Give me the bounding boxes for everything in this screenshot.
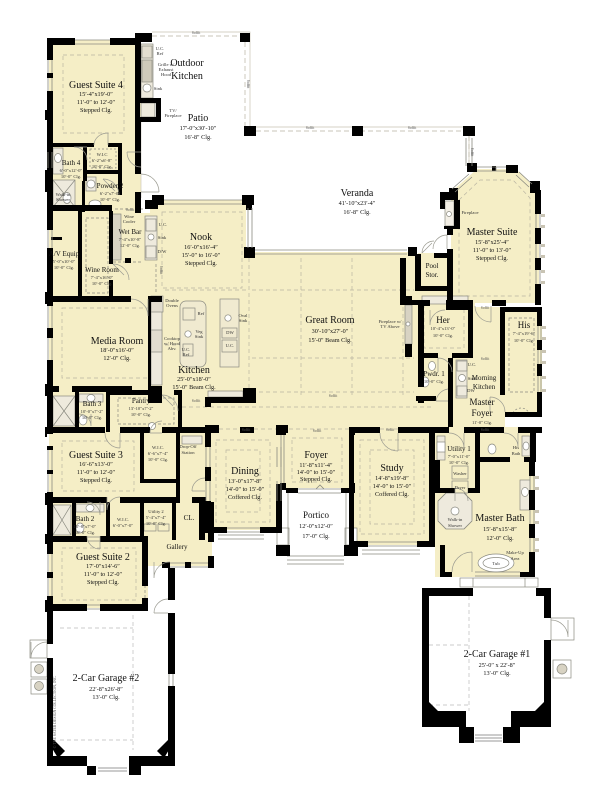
svg-text:25′-0″x18′-0″: 25′-0″x18′-0″ [177, 376, 211, 383]
svg-text:Drop-Off: Drop-Off [179, 444, 197, 449]
svg-text:11′-0″ to 13′-0″: 11′-0″ to 13′-0″ [473, 247, 512, 254]
svg-text:Hood: Hood [161, 72, 172, 77]
svg-text:15′-0″ Beam Clg.: 15′-0″ Beam Clg. [172, 384, 216, 391]
svg-text:7′-0″x11′-0″: 7′-0″x11′-0″ [448, 454, 471, 459]
svg-text:11′-0″ to 12′-0″: 11′-0″ to 12′-0″ [84, 571, 123, 578]
svg-text:Gallery: Gallery [167, 543, 188, 551]
svg-text:13′-0″ Clg.: 13′-0″ Clg. [92, 694, 120, 701]
svg-text:Soffit: Soffit [386, 428, 396, 432]
svg-text:Soffit: Soffit [126, 208, 136, 212]
svg-text:11′-0″ to 12′-0″: 11′-0″ to 12′-0″ [77, 469, 116, 476]
svg-text:10′-0″ Clg.: 10′-0″ Clg. [82, 415, 102, 420]
svg-text:Area: Area [511, 556, 520, 561]
svg-text:12′-0″ Clg.: 12′-0″ Clg. [103, 355, 131, 362]
svg-text:Guest Suite 3: Guest Suite 3 [69, 450, 123, 461]
svg-text:17′-0″x30′-10″: 17′-0″x30′-10″ [180, 125, 217, 132]
svg-text:Cooler: Cooler [123, 219, 136, 224]
svg-text:Soffit: Soffit [313, 429, 323, 433]
svg-text:7′-4″x19′-6″: 7′-4″x19′-6″ [513, 331, 536, 336]
svg-text:Stepped Clg.: Stepped Clg. [476, 255, 508, 262]
svg-text:Sink: Sink [468, 376, 477, 381]
svg-text:25′-0″ x 22′-8″: 25′-0″ x 22′-8″ [479, 662, 516, 669]
svg-text:Nook: Nook [190, 232, 212, 243]
svg-text:Dining: Dining [231, 466, 259, 477]
svg-text:10′-8″x7′-0″: 10′-8″x7′-0″ [74, 524, 97, 529]
svg-text:Bath 3: Bath 3 [83, 400, 102, 408]
svg-text:12′-0″ Clg.: 12′-0″ Clg. [486, 535, 514, 542]
svg-text:His: His [518, 320, 531, 330]
svg-text:14′-0″ to 15′-0″: 14′-0″ to 15′-0″ [226, 486, 265, 493]
svg-text:10′-0″ Clg.: 10′-0″ Clg. [54, 265, 74, 270]
svg-text:14′-8″x19′-8″: 14′-8″x19′-8″ [375, 475, 409, 482]
svg-text:10′-4″x13′-0″: 10′-4″x13′-0″ [431, 326, 456, 331]
svg-text:10′-0″ Clg.: 10′-0″ Clg. [424, 379, 444, 384]
svg-text:Stepped Clg.: Stepped Clg. [87, 579, 119, 586]
svg-text:13′-10″x7′-2″: 13′-10″x7′-2″ [129, 406, 154, 411]
svg-text:Soffit: Soffit [408, 126, 418, 130]
svg-text:Pantry: Pantry [132, 397, 151, 405]
svg-text:5′-4″x7′-4″: 5′-4″x7′-4″ [146, 515, 166, 520]
svg-text:Sink: Sink [154, 86, 163, 91]
svg-text:6′-2″x6′-8″: 6′-2″x6′-8″ [92, 158, 112, 163]
svg-text:10′-0″ Clg.: 10′-0″ Clg. [131, 412, 151, 417]
svg-text:Sink: Sink [239, 318, 248, 323]
svg-text:10′-0″ Clg.: 10′-0″ Clg. [449, 460, 469, 465]
svg-text:W.I.C.: W.I.C. [152, 445, 164, 450]
svg-text:Bath 2: Bath 2 [76, 515, 95, 523]
svg-text:His: His [513, 445, 520, 450]
svg-text:Soffit: Soffit [329, 394, 339, 398]
svg-text:Patio: Patio [188, 113, 209, 124]
svg-text:Sink: Sink [158, 235, 167, 240]
svg-text:10′-0″ Clg.: 10′-0″ Clg. [100, 197, 120, 202]
svg-text:10′-0″x7′-2″: 10′-0″x7′-2″ [81, 409, 104, 414]
svg-text:W.I.C: W.I.C [97, 152, 108, 157]
svg-text:10′-0″ Clg.: 10′-0″ Clg. [146, 521, 166, 526]
svg-text:W.I.C.: W.I.C. [117, 517, 129, 522]
svg-text:15′-0″ Beam Clg.: 15′-0″ Beam Clg. [308, 337, 352, 344]
svg-text:Make-Up: Make-Up [506, 550, 524, 555]
svg-text:12′-0″x12′-0″: 12′-0″x12′-0″ [299, 523, 333, 530]
svg-text:DW: DW [467, 388, 475, 393]
svg-text:41′-10″x23′-4″: 41′-10″x23′-4″ [339, 200, 376, 207]
svg-text:Utility 2: Utility 2 [148, 509, 164, 514]
svg-text:Media Room: Media Room [91, 336, 144, 347]
svg-text:Soffit: Soffit [306, 126, 316, 130]
svg-text:16′-6″x13′-0″: 16′-6″x13′-0″ [79, 461, 113, 468]
svg-text:Wet Bar: Wet Bar [119, 228, 143, 236]
svg-text:Abv.: Abv. [168, 346, 177, 351]
svg-text:Dryer: Dryer [455, 485, 466, 490]
svg-text:Soffit: Soffit [242, 428, 252, 432]
svg-text:2-Car Garage #2: 2-Car Garage #2 [73, 673, 140, 684]
svg-text:A/V Equip: A/V Equip [49, 250, 80, 258]
svg-text:11′-0″ Clg.: 11′-0″ Clg. [472, 420, 492, 425]
svg-text:Powder 2: Powder 2 [97, 182, 124, 190]
svg-text:Station: Station [181, 450, 195, 455]
svg-text:17′-0″x14′-6″: 17′-0″x14′-6″ [86, 563, 120, 570]
svg-text:Stepped Clg.: Stepped Clg. [185, 260, 217, 267]
svg-text:Soffit: Soffit [481, 428, 491, 432]
svg-text:CL.: CL. [184, 514, 195, 522]
svg-text:Washer: Washer [453, 471, 467, 476]
svg-text:12′-0″ Clg.: 12′-0″ Clg. [120, 243, 140, 248]
svg-text:16′-8″ Clg.: 16′-8″ Clg. [343, 209, 371, 216]
svg-text:D/W: D/W [158, 249, 168, 254]
svg-text:Foyer: Foyer [472, 408, 493, 418]
svg-text:Stepped Clg.: Stepped Clg. [300, 476, 332, 483]
svg-text:U.C.: U.C. [159, 222, 168, 227]
svg-text:30′-10″x27′-0″: 30′-10″x27′-0″ [312, 328, 349, 335]
svg-text:7′-4″x10′-8″: 7′-4″x10′-8″ [119, 237, 142, 242]
svg-text:6′-2″x7′-0″: 6′-2″x7′-0″ [100, 191, 120, 196]
svg-text:Stor.: Stor. [425, 271, 438, 279]
svg-text:13′-0″ Clg.: 13′-0″ Clg. [483, 670, 511, 677]
svg-text:10′-0″ Clg.: 10′-0″ Clg. [61, 174, 81, 179]
svg-text:15′-4″x19′-0″: 15′-4″x19′-0″ [79, 91, 113, 98]
svg-text:10′-0″ Clg.: 10′-0″ Clg. [514, 338, 534, 343]
svg-text:16′-8″ Clg.: 16′-8″ Clg. [184, 134, 212, 141]
svg-text:Wine Room: Wine Room [85, 266, 119, 274]
svg-text:Fireplace: Fireplace [164, 113, 181, 118]
svg-text:Soffit: Soffit [481, 306, 491, 310]
svg-text:Shower: Shower [56, 197, 71, 202]
svg-text:17′-0″ Clg.: 17′-0″ Clg. [302, 533, 330, 540]
svg-text:Outdoor: Outdoor [170, 58, 204, 69]
svg-text:TV Above: TV Above [380, 324, 399, 329]
svg-text:Great Room: Great Room [305, 315, 354, 326]
svg-text:Soffit: Soffit [470, 148, 474, 158]
svg-text:Ovens: Ovens [166, 303, 178, 308]
svg-text:15′-0″ to 16′-0″: 15′-0″ to 16′-0″ [182, 252, 221, 259]
svg-text:Sink: Sink [195, 334, 204, 339]
svg-text:Coffered Clg.: Coffered Clg. [228, 494, 262, 501]
svg-text:Fireplace: Fireplace [461, 210, 478, 215]
svg-text:Ref: Ref [183, 352, 190, 357]
svg-text:Study: Study [380, 463, 403, 474]
svg-text:Ref: Ref [157, 51, 164, 56]
svg-text:Master Suite: Master Suite [467, 227, 518, 238]
svg-text:Her: Her [436, 315, 450, 325]
svg-text:6′-0″x7′-0″: 6′-0″x7′-0″ [113, 523, 133, 528]
svg-text:11′-0″ to 12′-0″: 11′-0″ to 12′-0″ [77, 99, 116, 106]
svg-text:Kitchen: Kitchen [171, 71, 203, 82]
svg-text:Walk-in: Walk-in [448, 517, 463, 522]
svg-text:15′-8″x25′-4″: 15′-8″x25′-4″ [475, 239, 509, 246]
svg-text:14′-0″ to 15′-0″: 14′-0″ to 15′-0″ [297, 469, 336, 476]
svg-text:6′-0″x12′-0″: 6′-0″x12′-0″ [60, 168, 83, 173]
svg-text:Guest Suite 4: Guest Suite 4 [69, 80, 123, 91]
svg-text:Kitchen: Kitchen [178, 365, 210, 376]
svg-text:7′-4″x16′-0″: 7′-4″x16′-0″ [91, 275, 114, 280]
svg-text:10′-0″ Clg.: 10′-0″ Clg. [433, 333, 453, 338]
svg-text:U.C.: U.C. [226, 343, 235, 348]
svg-text:Stepped Clg.: Stepped Clg. [80, 107, 112, 114]
svg-text:2-Car Garage #1: 2-Car Garage #1 [464, 649, 531, 660]
svg-text:10′-0″ Clg.: 10′-0″ Clg. [148, 457, 168, 462]
svg-text:14′-0″ to 15′-0″: 14′-0″ to 15′-0″ [373, 483, 412, 490]
svg-text:10′-0″ Clg.: 10′-0″ Clg. [92, 281, 112, 286]
svg-text:Ref: Ref [198, 311, 205, 316]
svg-text:15′-8″x15′-8″: 15′-8″x15′-8″ [483, 526, 517, 533]
svg-text:Soffit: Soffit [159, 266, 163, 276]
svg-text:Pwdr. 1: Pwdr. 1 [423, 370, 445, 378]
svg-text:Pool: Pool [426, 262, 439, 270]
svg-text:22′-8″x26′-8″: 22′-8″x26′-8″ [89, 686, 123, 693]
svg-text:Kitchen: Kitchen [473, 383, 496, 391]
svg-text:10′-0″ Clg.: 10′-0″ Clg. [92, 164, 112, 169]
svg-text:5′-0″x10′-0″: 5′-0″x10′-0″ [53, 259, 76, 264]
svg-text:Master Bath: Master Bath [475, 513, 524, 524]
svg-text:Foyer: Foyer [304, 450, 328, 461]
svg-text:11′-8″x11′-4″: 11′-8″x11′-4″ [299, 462, 333, 469]
svg-text:Tub: Tub [492, 561, 500, 566]
svg-text:Soffit: Soffit [481, 357, 491, 361]
svg-text:16′-0″x16′-4″: 16′-0″x16′-4″ [184, 244, 218, 251]
svg-text:Soffit: Soffit [246, 80, 250, 90]
svg-text:18′-0″x16′-0″: 18′-0″x16′-0″ [100, 347, 134, 354]
svg-text:Guest Suite 2: Guest Suite 2 [76, 552, 130, 563]
svg-text:Shower: Shower [448, 523, 463, 528]
svg-text:Soffit: Soffit [192, 399, 202, 403]
svg-text:6′-6″x7′-4″: 6′-6″x7′-4″ [148, 451, 168, 456]
svg-text:Utility 1: Utility 1 [447, 445, 471, 453]
svg-text:Soffit: Soffit [192, 31, 202, 35]
svg-text:10′-0″ Clg.: 10′-0″ Clg. [75, 530, 95, 535]
svg-text:Coffered Clg.: Coffered Clg. [375, 491, 409, 498]
svg-text:Bath 4: Bath 4 [62, 159, 81, 167]
svg-text:Veranda: Veranda [341, 188, 374, 199]
svg-text:Master: Master [470, 397, 495, 407]
svg-text:13′-0″x17′-8″: 13′-0″x17′-8″ [228, 478, 262, 485]
svg-text:Stepped Clg.: Stepped Clg. [80, 477, 112, 484]
svg-text:DW: DW [226, 330, 234, 335]
svg-text:Bath: Bath [512, 451, 521, 456]
svg-text:Portico: Portico [303, 510, 329, 520]
svg-text:U.C.: U.C. [468, 362, 477, 367]
